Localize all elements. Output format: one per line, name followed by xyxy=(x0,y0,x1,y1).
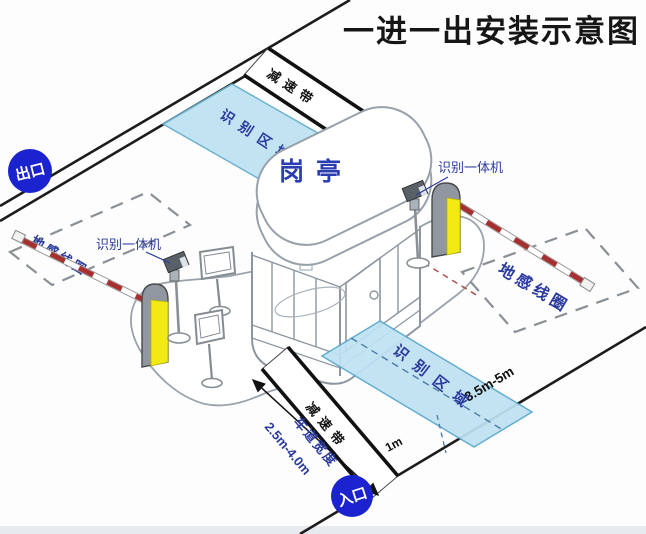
exit-barrier-housing-front xyxy=(151,300,168,366)
entry-barrier-housing-front xyxy=(447,198,460,255)
entry-camera-label: 识别一体机 xyxy=(438,160,503,175)
installation-diagram: 减速带 识别区域 岗亭 识别区域 xyxy=(0,0,646,534)
page-title: 一进一出安装示意图 xyxy=(343,14,640,49)
installation-diagram-page: 减速带 识别区域 岗亭 识别区域 xyxy=(0,0,646,534)
bottom-strip xyxy=(0,526,646,534)
exit-badge: 出口 xyxy=(8,149,52,193)
entry-camera-bracket xyxy=(410,199,419,210)
entrance-badge: 入口 xyxy=(331,475,373,517)
booth-label: 岗亭 xyxy=(279,157,353,186)
exit-camera-label: 识别一体机 xyxy=(96,237,161,252)
